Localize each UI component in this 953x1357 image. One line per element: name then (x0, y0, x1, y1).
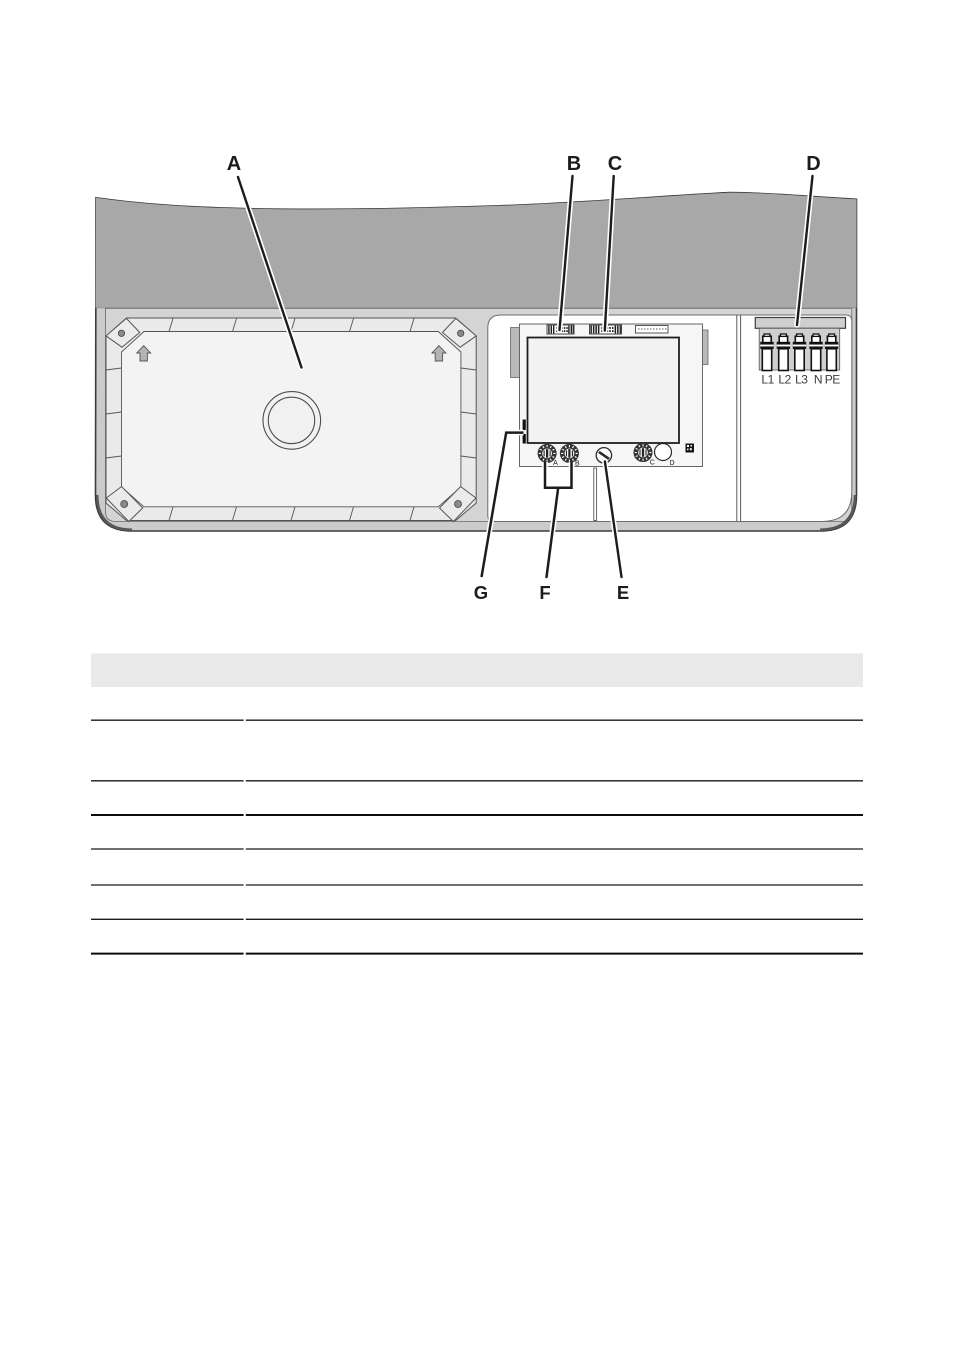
svg-text:D: D (669, 460, 674, 467)
svg-text:A: A (553, 460, 558, 467)
svg-text:G: G (474, 582, 488, 603)
svg-text:C: C (608, 153, 622, 175)
svg-text:N: N (814, 373, 822, 387)
svg-text:L1: L1 (761, 373, 774, 387)
svg-text:L3: L3 (795, 373, 808, 387)
svg-text:B: B (567, 153, 581, 175)
svg-text:F: F (539, 582, 550, 603)
svg-text:D: D (806, 153, 820, 175)
svg-text:L2: L2 (778, 373, 791, 387)
svg-text:C: C (650, 459, 655, 466)
svg-text:A: A (227, 153, 241, 175)
svg-text:B: B (575, 460, 580, 467)
svg-text:E: E (617, 582, 629, 603)
svg-text:PE: PE (825, 373, 841, 387)
